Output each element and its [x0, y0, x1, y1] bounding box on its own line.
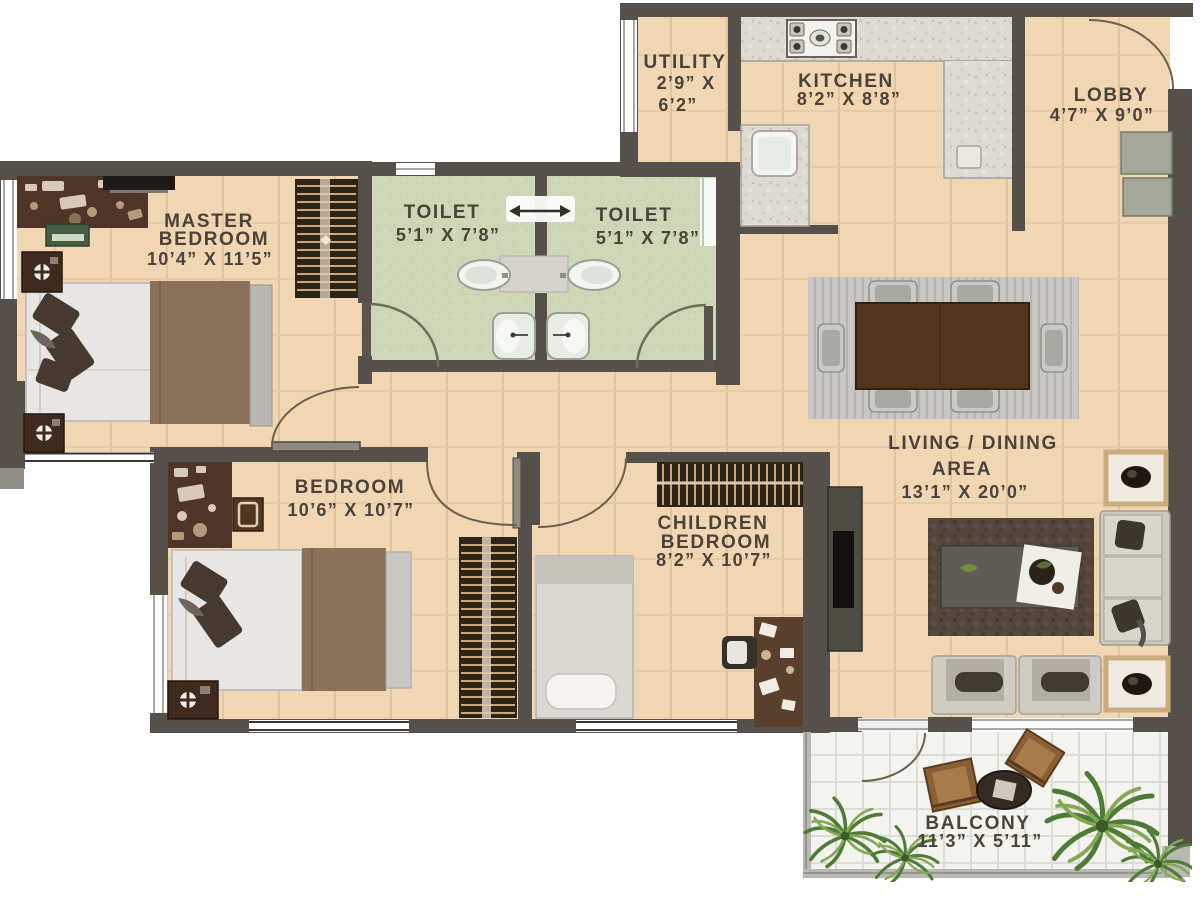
svg-text:6’2”: 6’2” [658, 95, 697, 115]
svg-text:2’9” X: 2’9” X [657, 73, 716, 93]
svg-text:LOBBY: LOBBY [1074, 85, 1149, 106]
svg-text:10’6” X 10’7”: 10’6” X 10’7” [288, 500, 415, 520]
svg-text:TOILET: TOILET [404, 202, 481, 223]
svg-text:8’2” X 8’8”: 8’2” X 8’8” [797, 89, 901, 109]
svg-text:UTILITY: UTILITY [644, 52, 727, 73]
svg-text:8’2” X 10’7”: 8’2” X 10’7” [656, 550, 772, 570]
svg-text:TOILET: TOILET [596, 205, 673, 226]
svg-text:LIVING / DINING: LIVING / DINING [888, 433, 1058, 454]
svg-text:13’1” X 20’0”: 13’1” X 20’0” [902, 482, 1029, 502]
svg-text:BEDROOM: BEDROOM [295, 477, 405, 498]
svg-text:11’3” X 5’11”: 11’3” X 5’11” [918, 831, 1043, 851]
svg-text:CHILDREN: CHILDREN [658, 513, 769, 534]
svg-text:10’4” X 11’5”: 10’4” X 11’5” [147, 249, 273, 269]
svg-text:5’1” X 7’8”: 5’1” X 7’8” [396, 225, 500, 245]
svg-text:BEDROOM: BEDROOM [159, 229, 269, 250]
svg-text:4’7” X 9’0”: 4’7” X 9’0” [1050, 105, 1154, 125]
svg-text:5’1” X 7’8”: 5’1” X 7’8” [596, 228, 700, 248]
svg-text:AREA: AREA [932, 459, 992, 480]
